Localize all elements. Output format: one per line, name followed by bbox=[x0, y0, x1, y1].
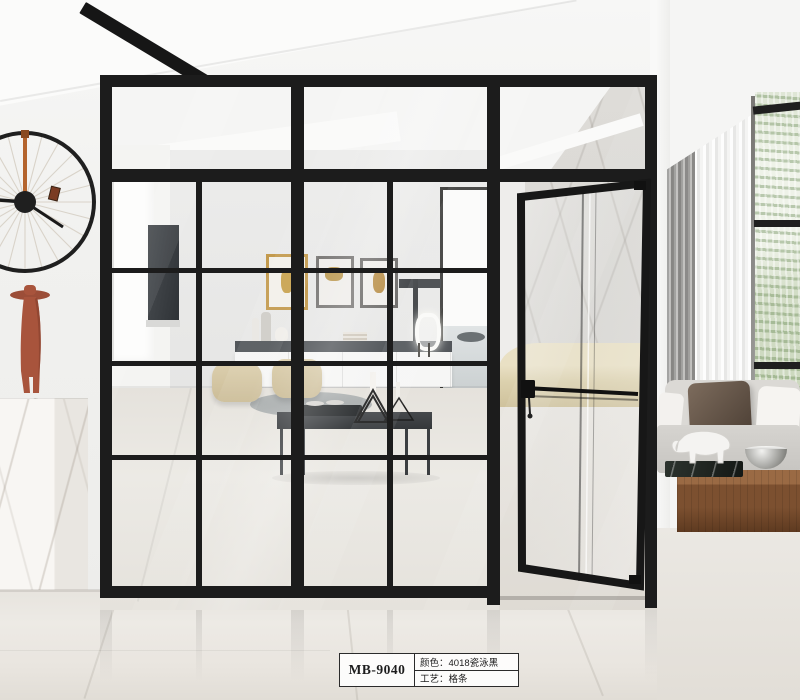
wood-coffee-table bbox=[677, 470, 800, 532]
partition-thin-rail bbox=[112, 268, 487, 273]
dark-shelf-unit bbox=[399, 279, 441, 288]
sideboard-cabinet bbox=[235, 352, 452, 387]
partition-top-rail bbox=[100, 75, 657, 87]
partition-left-post bbox=[100, 75, 112, 598]
product-model: MB-9040 bbox=[340, 654, 415, 686]
clock-stem-cap bbox=[21, 130, 29, 138]
book-stack bbox=[343, 332, 367, 341]
partition-thin-mullion bbox=[387, 182, 393, 592]
glass-swing-door bbox=[505, 175, 655, 600]
spec-craft: 工艺：格条 bbox=[415, 671, 518, 687]
lamp-leg bbox=[428, 343, 430, 357]
coffee-table-leg bbox=[280, 429, 283, 475]
spec-color: 颜色：4018瓷泳黑 bbox=[415, 654, 518, 671]
interior-product-photo: MB-9040 颜色：4018瓷泳黑 工艺：格条 bbox=[0, 0, 800, 700]
vase bbox=[261, 312, 271, 341]
wheel-clock bbox=[0, 127, 100, 277]
product-label: MB-9040 颜色：4018瓷泳黑 工艺：格条 bbox=[339, 653, 519, 687]
door-bottom-pivot bbox=[629, 575, 641, 584]
plate bbox=[306, 401, 324, 406]
horse-sculpture bbox=[665, 425, 737, 467]
plate bbox=[326, 400, 344, 405]
partition-center-mullion bbox=[291, 75, 304, 598]
clock-pendant bbox=[48, 186, 60, 201]
coffee-table-leg bbox=[427, 429, 430, 475]
product-specs: 颜色：4018瓷泳黑 工艺：格条 bbox=[415, 654, 518, 686]
vase bbox=[252, 318, 259, 341]
floor-tile-joint bbox=[0, 650, 330, 651]
door-lock[interactable] bbox=[521, 380, 535, 398]
candle-holders bbox=[345, 370, 415, 425]
tv-shelf bbox=[146, 320, 180, 327]
lamp-leg bbox=[418, 343, 420, 357]
door-key bbox=[529, 398, 530, 414]
partition-thin-mullion bbox=[196, 182, 202, 592]
door-glass bbox=[521, 183, 647, 586]
headland bbox=[457, 332, 485, 342]
terracotta-figurine bbox=[6, 281, 58, 401]
window-bar-low bbox=[754, 362, 800, 369]
clock-hub bbox=[14, 191, 36, 213]
right-lounge bbox=[657, 0, 800, 700]
wall-tv bbox=[148, 225, 179, 323]
coffee-table-leg bbox=[405, 429, 408, 475]
partition-bottom-rail bbox=[100, 586, 499, 598]
window-bar-mid bbox=[754, 220, 800, 227]
door-frame-left-post bbox=[487, 75, 500, 605]
lounge-floor bbox=[657, 528, 800, 700]
partition-thin-rail bbox=[112, 361, 487, 366]
partition-thin-rail bbox=[112, 455, 487, 460]
vase bbox=[275, 327, 288, 341]
pouf-ottoman bbox=[212, 363, 262, 402]
marble-pedestal bbox=[0, 398, 88, 607]
door-top-pivot bbox=[634, 181, 646, 190]
wall-art-frame-2 bbox=[316, 256, 354, 308]
